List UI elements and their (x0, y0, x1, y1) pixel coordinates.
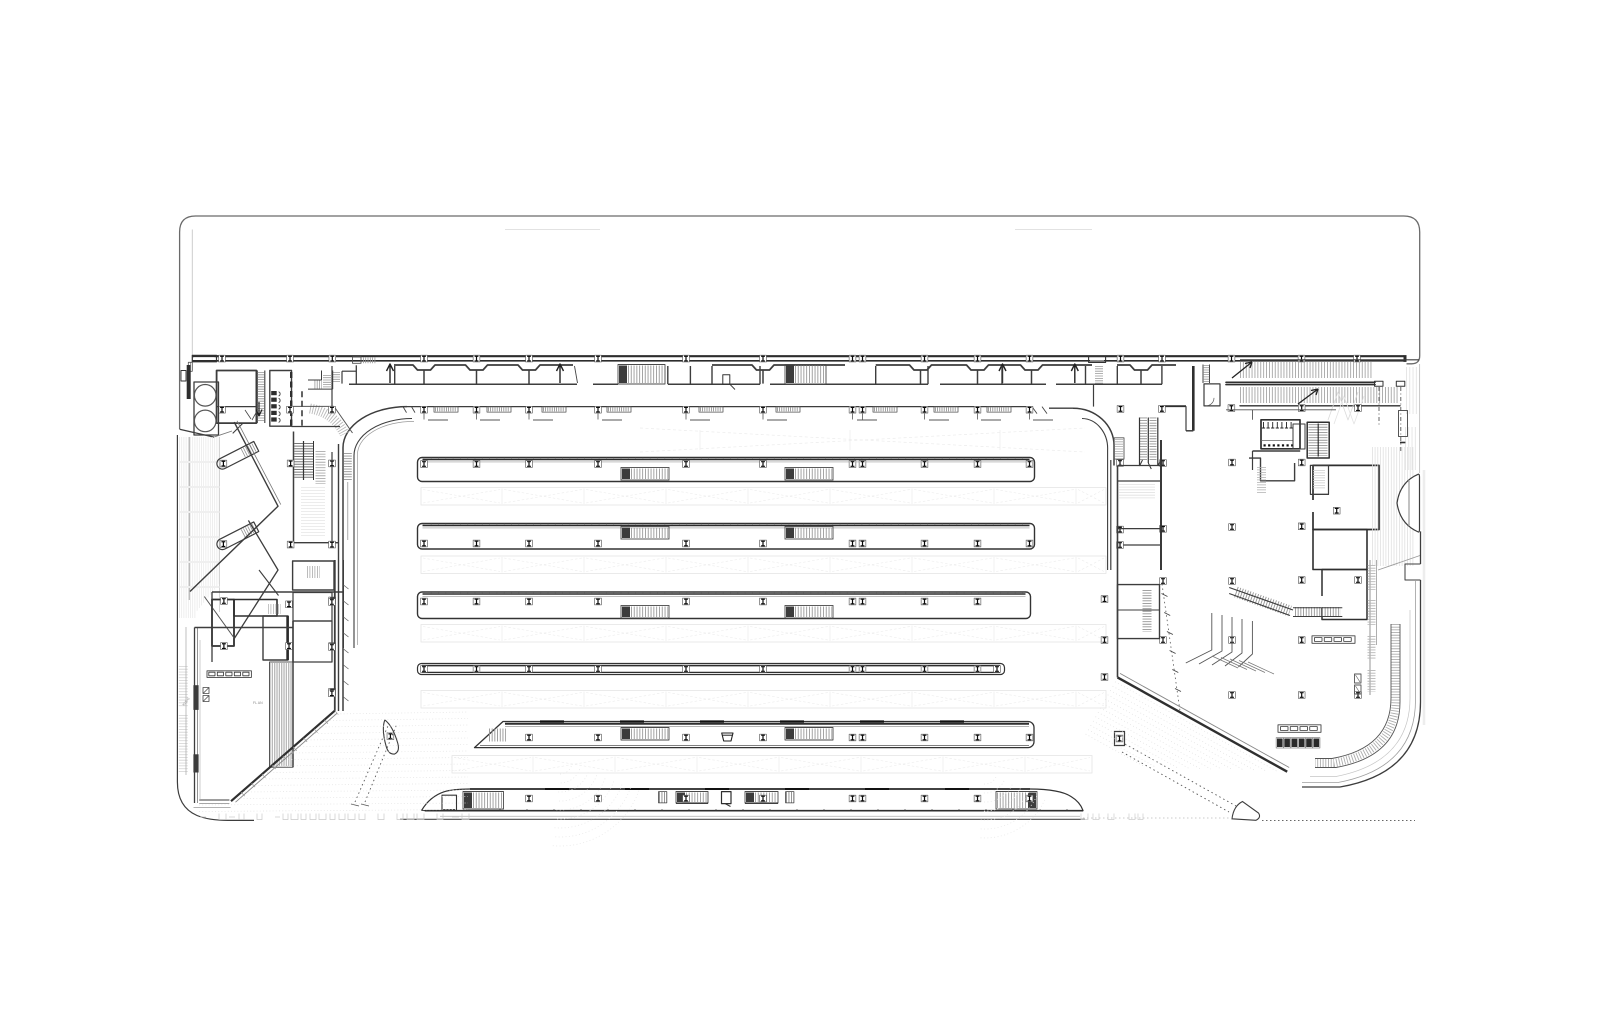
svg-text:FL AN: FL AN (253, 701, 263, 705)
